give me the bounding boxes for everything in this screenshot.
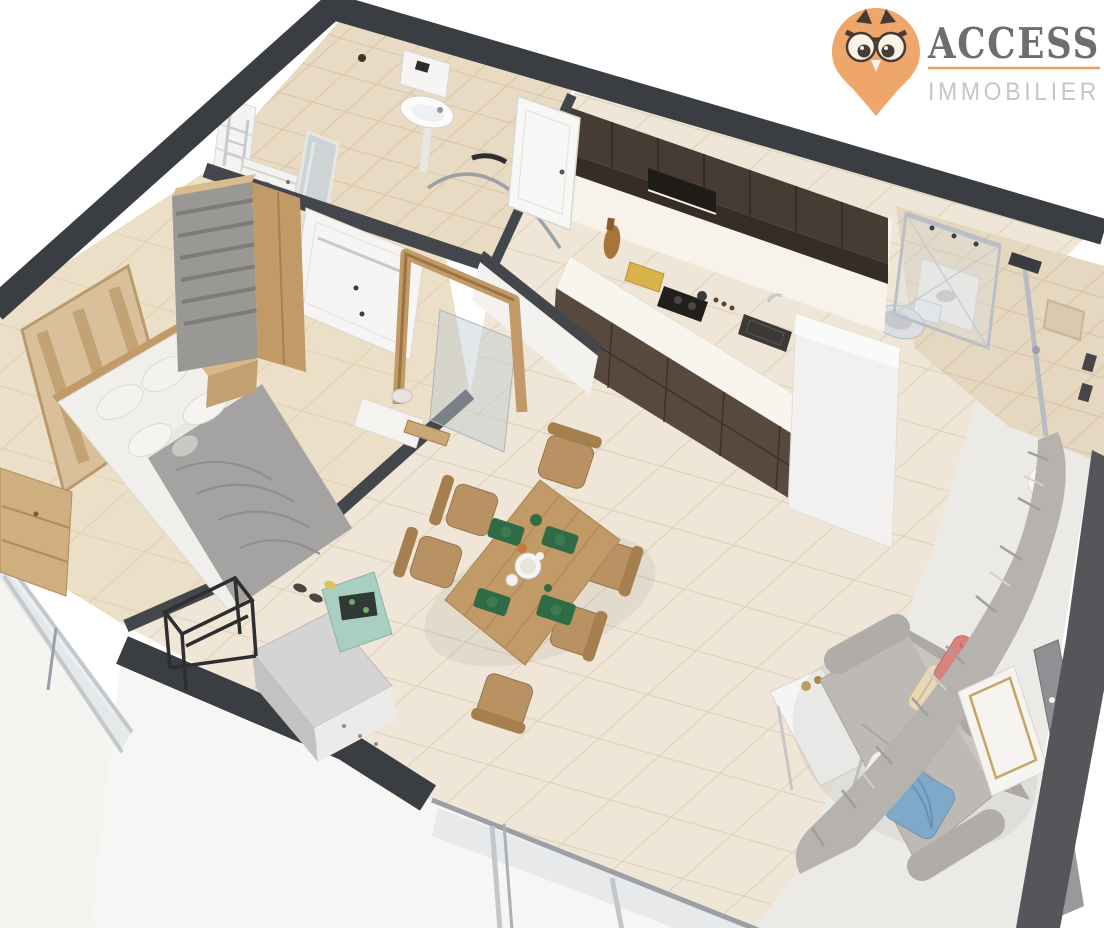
brand-logo: ACCESS IMMOBILIER (826, 2, 1104, 122)
green-bowl (487, 597, 498, 608)
brand-tagline: IMMOBILIER (928, 78, 1100, 106)
door-hook (360, 312, 365, 317)
green-jar (530, 514, 542, 526)
spice-jar (714, 298, 719, 303)
sink-faucet (437, 107, 443, 113)
owl-map-pin-icon (832, 8, 920, 116)
brand-name: ACCESS (927, 19, 1100, 68)
door-handle (560, 170, 565, 175)
wardrobe (172, 174, 306, 372)
door-hook (354, 286, 359, 291)
shower-handle (1032, 346, 1040, 354)
green-bowl (551, 605, 562, 616)
washer-knob (286, 180, 290, 184)
drawer-knob (34, 512, 39, 517)
shower-shelf-item (930, 226, 935, 231)
ceiling-spot (358, 54, 366, 62)
drawer-knob (358, 734, 362, 738)
tv-logo-dot (1049, 697, 1055, 703)
entry-door (508, 96, 580, 230)
shower-shelf-item (952, 234, 957, 239)
crate-label (339, 592, 378, 621)
ceramic-jar (392, 389, 412, 403)
orange-fruit (517, 543, 527, 553)
shower-shelf-item (974, 242, 979, 247)
plate (506, 574, 518, 586)
spice-jar (730, 306, 735, 311)
drawer-knob (374, 742, 378, 746)
apartment-3d-plan: Shower room Bathroom (0, 0, 1104, 928)
green-cup (544, 584, 552, 592)
pot (697, 291, 707, 301)
cup (536, 552, 544, 560)
floor-plan-render: Shower room Bathroom (0, 0, 1104, 928)
spice-jar (722, 302, 727, 307)
drawer-knob (342, 724, 346, 728)
tall-cabinet-partition (788, 314, 900, 548)
green-bowl (501, 527, 512, 538)
green-bowl (555, 535, 566, 546)
